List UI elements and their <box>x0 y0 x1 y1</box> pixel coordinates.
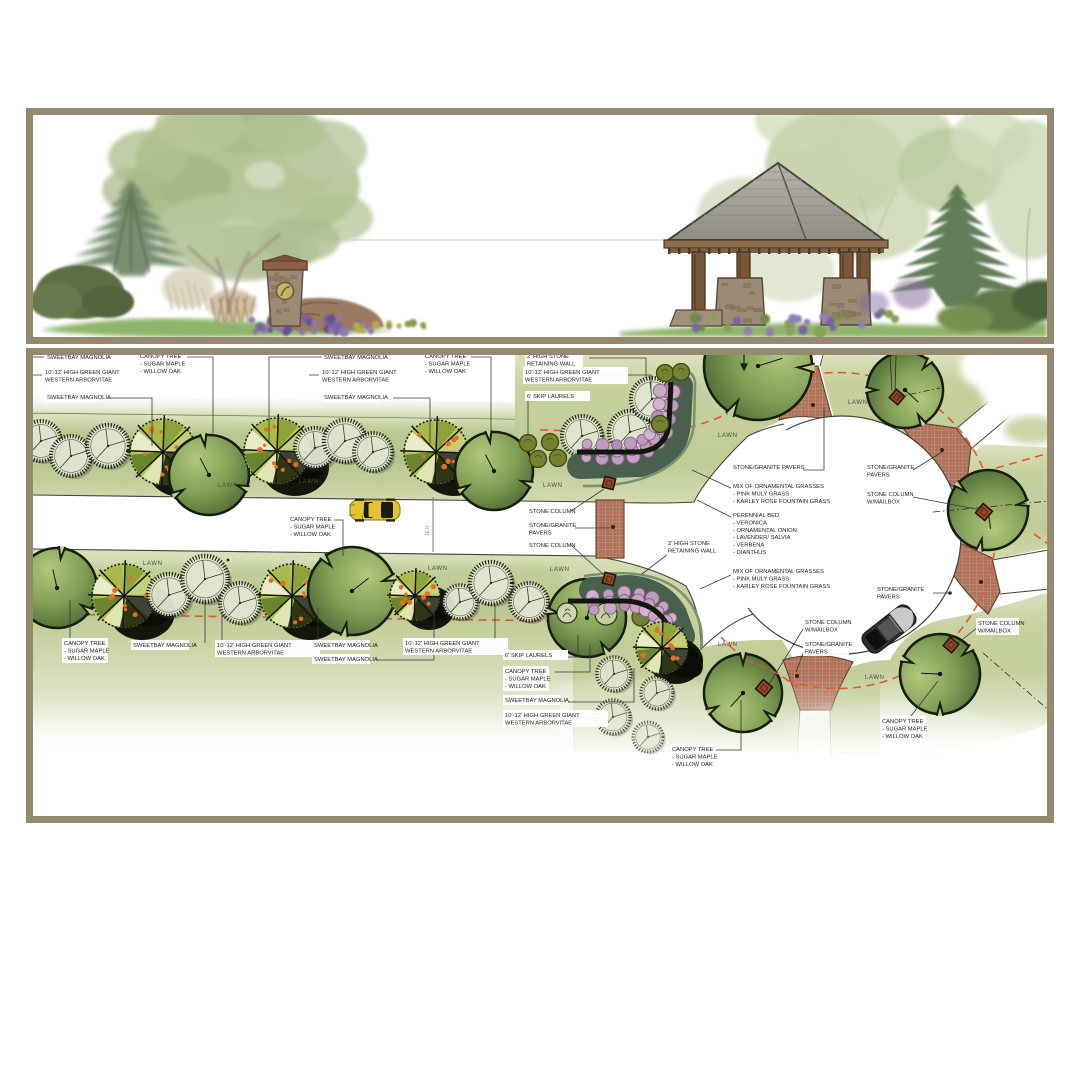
svg-text:STONE COLUMN: STONE COLUMN <box>805 620 852 626</box>
svg-text:- SUGAR MAPLE: - SUGAR MAPLE <box>672 754 718 760</box>
svg-text:SWEETBAY MAGNOLIA: SWEETBAY MAGNOLIA <box>314 657 378 663</box>
svg-text:- SUGAR MAPLE: - SUGAR MAPLE <box>140 361 186 367</box>
svg-text:STONE COLUMN: STONE COLUMN <box>978 621 1025 627</box>
svg-text:10'-12' HIGH GREEN GIANT: 10'-12' HIGH GREEN GIANT <box>45 370 120 376</box>
svg-text:2' HIGH STONE: 2' HIGH STONE <box>668 541 710 547</box>
svg-text:LAWN: LAWN <box>543 483 563 489</box>
svg-text:STONE COLUMN: STONE COLUMN <box>867 492 914 498</box>
svg-text:LAWN: LAWN <box>848 400 868 406</box>
svg-text:LAWN: LAWN <box>718 642 738 648</box>
svg-text:MIX OF ORNAMENTAL GRASSES: MIX OF ORNAMENTAL GRASSES <box>733 569 824 575</box>
svg-text:CANOPY TREE: CANOPY TREE <box>882 719 923 725</box>
svg-text:10'-12' HIGH GREEN GIANT: 10'-12' HIGH GREEN GIANT <box>217 643 292 649</box>
svg-text:WESTERN ARBORVITAE: WESTERN ARBORVITAE <box>217 650 284 656</box>
svg-text:- SUGAR MAPLE: - SUGAR MAPLE <box>64 648 110 654</box>
svg-text:WESTERN ARBORVITAE: WESTERN ARBORVITAE <box>405 648 472 654</box>
svg-text:6' SKIP LAURELS: 6' SKIP LAURELS <box>505 653 552 659</box>
svg-text:LAWN: LAWN <box>218 483 238 489</box>
svg-text:SWEETBAY MAGNOLIA: SWEETBAY MAGNOLIA <box>47 395 111 401</box>
svg-text:WESTERN ARBORVITAE: WESTERN ARBORVITAE <box>525 377 592 383</box>
svg-text:SWEETBAY MAGNOLIA: SWEETBAY MAGNOLIA <box>47 355 111 361</box>
svg-text:- VERBENA: - VERBENA <box>733 543 764 549</box>
svg-text:W/MAILBOX: W/MAILBOX <box>867 499 900 505</box>
svg-text:PAVERS: PAVERS <box>867 472 890 478</box>
svg-text:- SUGAR MAPLE: - SUGAR MAPLE <box>425 361 471 367</box>
svg-text:LAWN: LAWN <box>865 675 885 681</box>
svg-text:STONE COLUMN: STONE COLUMN <box>529 543 576 549</box>
svg-text:- SUGAR MAPLE: - SUGAR MAPLE <box>290 524 336 530</box>
svg-text:CANOPY TREE: CANOPY TREE <box>505 669 546 675</box>
svg-text:CANOPY TREE: CANOPY TREE <box>64 641 105 647</box>
svg-text:LAWN: LAWN <box>550 567 570 573</box>
svg-text:SWEETBAY MAGNOLIA: SWEETBAY MAGNOLIA <box>314 643 378 649</box>
svg-text:10'-12' HIGH GREEN GIANT: 10'-12' HIGH GREEN GIANT <box>405 641 480 647</box>
svg-text:6' SKIP LAURELS: 6' SKIP LAURELS <box>527 394 574 400</box>
svg-text:- KARLEY ROSE FOUNTAIN GRASS: - KARLEY ROSE FOUNTAIN GRASS <box>733 584 830 590</box>
svg-text:- WILLOW OAK: - WILLOW OAK <box>882 734 923 740</box>
svg-text:STONE/GRANITE PAVERS: STONE/GRANITE PAVERS <box>733 465 805 471</box>
svg-text:- VERONICA: - VERONICA <box>733 520 767 526</box>
svg-text:- WILLOW OAK: - WILLOW OAK <box>672 762 713 768</box>
svg-text:LAWN: LAWN <box>143 561 163 567</box>
svg-text:- DIANTHUS: - DIANTHUS <box>733 550 766 556</box>
svg-text:PAVERS: PAVERS <box>805 649 828 655</box>
svg-text:SWEETBAY MAGNOLIA: SWEETBAY MAGNOLIA <box>324 355 388 361</box>
svg-text:STONE COLUMN: STONE COLUMN <box>529 509 576 515</box>
svg-text:PERENNIAL BED: PERENNIAL BED <box>733 513 779 519</box>
svg-text:MIX OF ORNAMENTAL GRASSES: MIX OF ORNAMENTAL GRASSES <box>733 484 824 490</box>
svg-text:- WILLOW OAK: - WILLOW OAK <box>64 656 105 662</box>
svg-text:STONE/GRANITE: STONE/GRANITE <box>867 465 914 471</box>
svg-text:PAVERS: PAVERS <box>529 530 552 536</box>
svg-text:- KARLEY ROSE FOUNTAIN GRASS: - KARLEY ROSE FOUNTAIN GRASS <box>733 499 830 505</box>
svg-text:LAWN: LAWN <box>299 479 319 485</box>
svg-text:STONE/GRANITE: STONE/GRANITE <box>529 523 576 529</box>
svg-text:- SUGAR MAPLE: - SUGAR MAPLE <box>882 726 928 732</box>
svg-text:RETAINING WALL: RETAINING WALL <box>668 548 717 554</box>
svg-text:W/MAILBOX: W/MAILBOX <box>805 627 838 633</box>
svg-text:STONE/GRANITE: STONE/GRANITE <box>805 642 852 648</box>
svg-text:- SUGAR MAPLE: - SUGAR MAPLE <box>505 676 551 682</box>
svg-text:LAWN: LAWN <box>718 433 738 439</box>
svg-text:16.0': 16.0' <box>425 525 431 536</box>
svg-text:- PINK MULY GRASS: - PINK MULY GRASS <box>733 576 789 582</box>
svg-text:PAVERS: PAVERS <box>877 594 900 600</box>
svg-text:CANOPY TREE: CANOPY TREE <box>290 517 331 523</box>
svg-text:10'-12' HIGH GREEN GIANT: 10'-12' HIGH GREEN GIANT <box>505 713 580 719</box>
svg-text:SWEETBAY MAGNOLIA: SWEETBAY MAGNOLIA <box>324 395 388 401</box>
svg-text:10'-12' HIGH GREEN GIANT: 10'-12' HIGH GREEN GIANT <box>525 370 600 376</box>
svg-text:10'-12' HIGH GREEN GIANT: 10'-12' HIGH GREEN GIANT <box>322 370 397 376</box>
svg-text:LAWN: LAWN <box>428 566 448 572</box>
svg-text:- ORNAMENTAL ONION: - ORNAMENTAL ONION <box>733 528 797 534</box>
svg-text:- WILLOW OAK: - WILLOW OAK <box>425 369 466 375</box>
svg-text:- LAVENDER/ SALVIA: - LAVENDER/ SALVIA <box>733 535 791 541</box>
svg-text:SWEETBAY MAGNOLIA: SWEETBAY MAGNOLIA <box>505 698 569 704</box>
svg-text:WESTERN ARBORVITAE: WESTERN ARBORVITAE <box>505 720 572 726</box>
svg-text:- PINK MULY GRASS: - PINK MULY GRASS <box>733 491 789 497</box>
svg-text:WESTERN ARBORVITAE: WESTERN ARBORVITAE <box>45 377 112 383</box>
svg-text:SWEETBAY MAGNOLIA: SWEETBAY MAGNOLIA <box>133 643 197 649</box>
svg-text:CANOPY TREE: CANOPY TREE <box>672 747 713 753</box>
svg-text:W/MAILBOX: W/MAILBOX <box>978 628 1011 634</box>
svg-text:RETAINING WALL: RETAINING WALL <box>527 361 576 367</box>
svg-text:- WILLOW OAK: - WILLOW OAK <box>140 369 181 375</box>
svg-text:- WILLOW OAK: - WILLOW OAK <box>290 532 331 538</box>
svg-text:STONE/GRANITE: STONE/GRANITE <box>877 587 924 593</box>
svg-text:- WILLOW OAK: - WILLOW OAK <box>505 684 546 690</box>
svg-text:WESTERN ARBORVITAE: WESTERN ARBORVITAE <box>322 377 389 383</box>
